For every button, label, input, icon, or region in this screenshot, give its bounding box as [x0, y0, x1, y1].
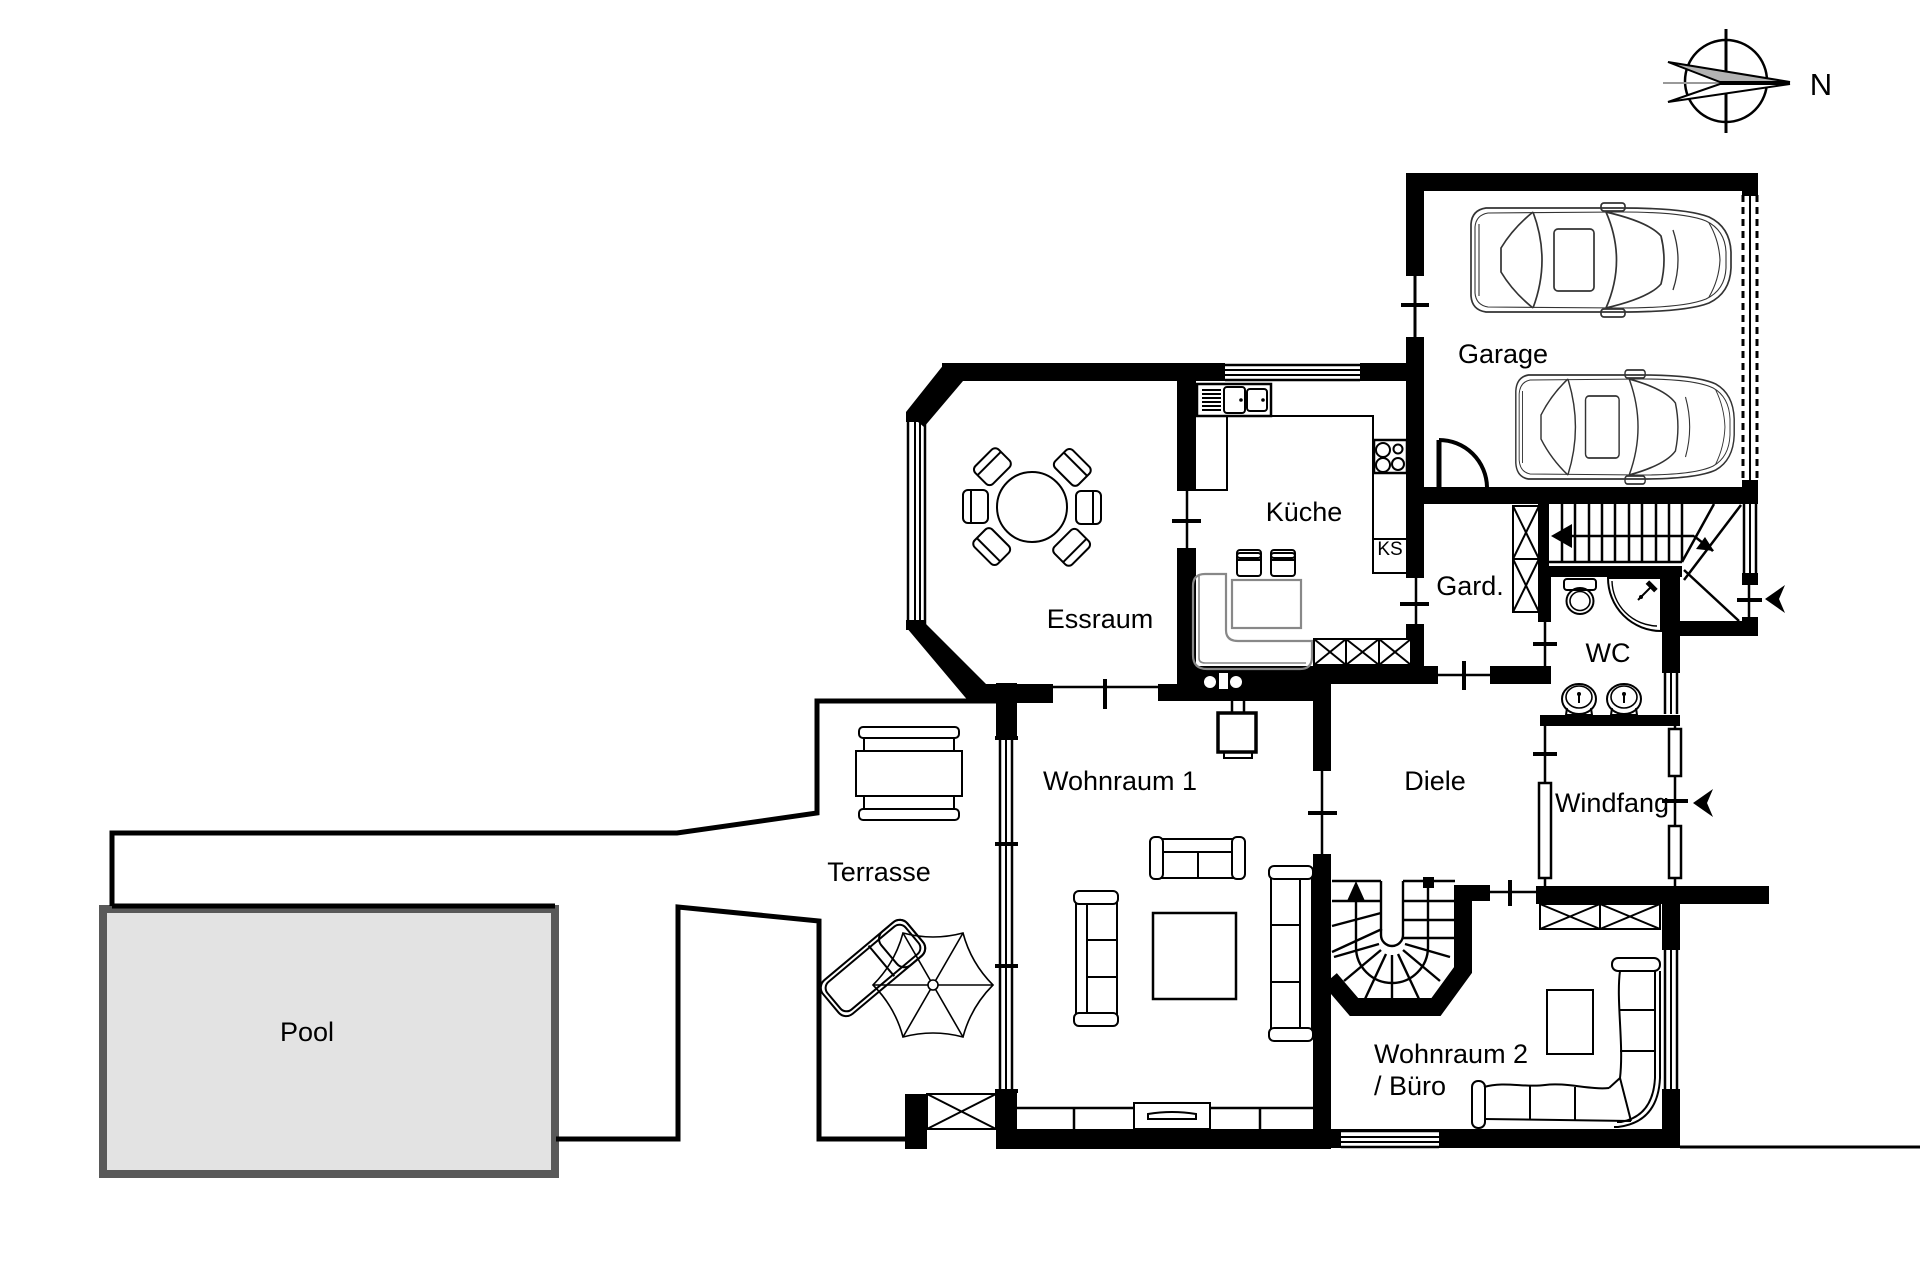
- svg-text:Pool: Pool: [280, 1017, 334, 1047]
- svg-text:Wohnraum 1: Wohnraum 1: [1043, 766, 1197, 796]
- svg-text:Windfang: Windfang: [1555, 788, 1669, 818]
- svg-text:Diele: Diele: [1404, 766, 1466, 796]
- svg-text:Terrasse: Terrasse: [827, 857, 931, 887]
- svg-text:/ Büro: / Büro: [1374, 1071, 1446, 1101]
- svg-text:N: N: [1810, 67, 1832, 102]
- svg-text:Gard.: Gard.: [1436, 571, 1504, 601]
- svg-text:WC: WC: [1586, 638, 1631, 668]
- svg-text:KS: KS: [1377, 539, 1402, 560]
- svg-text:Küche: Küche: [1266, 497, 1343, 527]
- svg-text:Garage: Garage: [1458, 339, 1548, 369]
- svg-text:Essraum: Essraum: [1047, 604, 1154, 634]
- svg-text:Wohnraum 2: Wohnraum 2: [1374, 1039, 1528, 1069]
